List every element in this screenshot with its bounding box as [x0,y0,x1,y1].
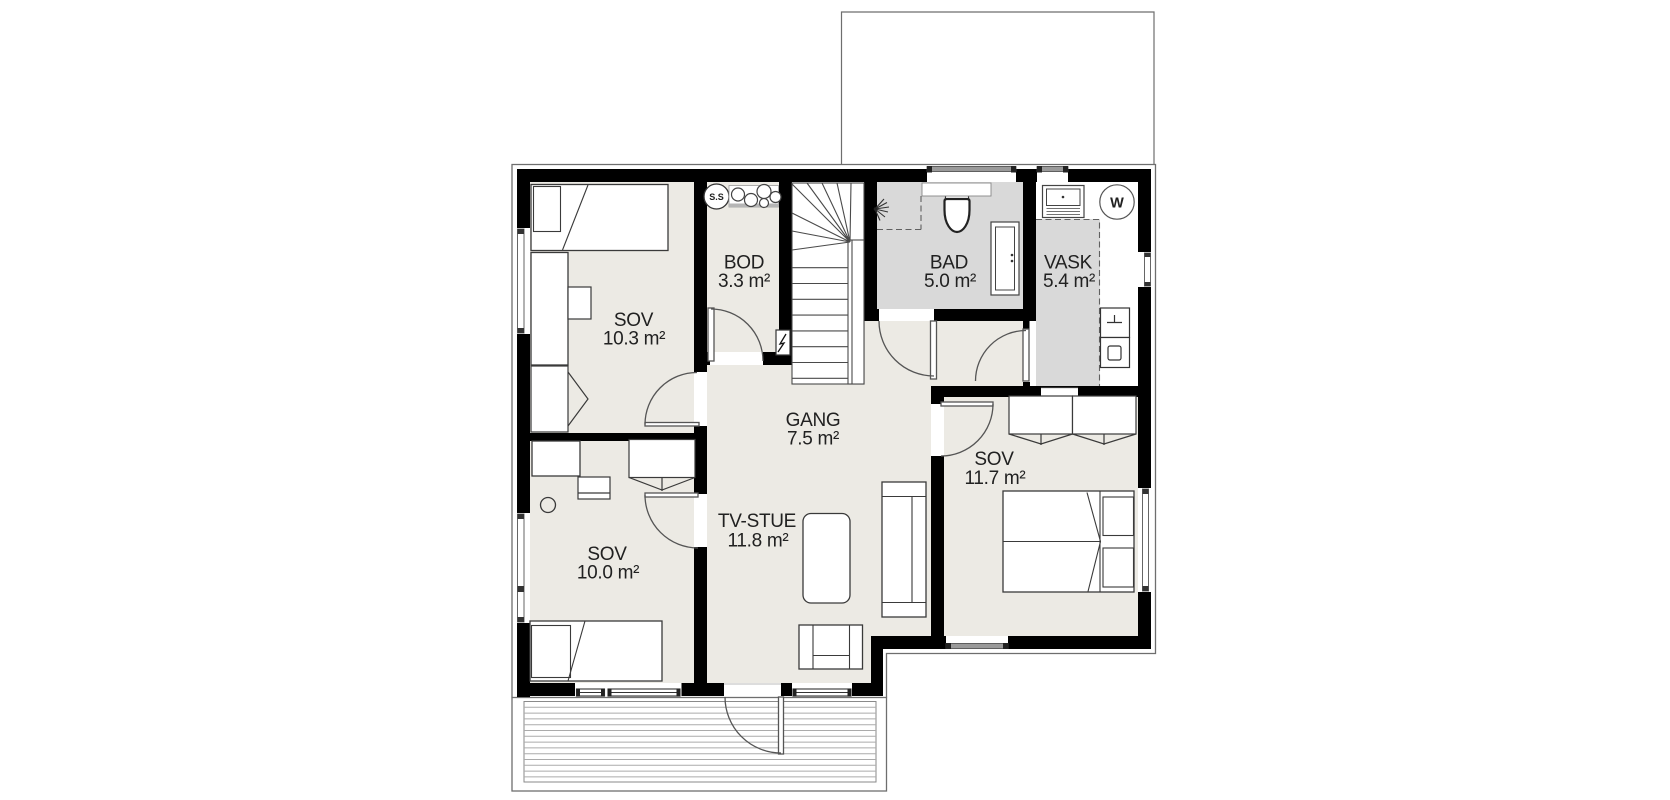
svg-text:11.8 m²: 11.8 m² [728,531,789,552]
svg-text:7.5 m²: 7.5 m² [787,429,839,450]
svg-text:S.S: S.S [709,192,724,202]
svg-text:SOV: SOV [974,449,1014,470]
svg-text:10.0 m²: 10.0 m² [577,563,639,584]
svg-text:11.7 m²: 11.7 m² [965,468,1026,489]
svg-text:W: W [1110,196,1124,212]
svg-text:TV-STUE: TV-STUE [718,511,796,532]
svg-text:3.3 m²: 3.3 m² [718,271,770,292]
svg-text:10.3 m²: 10.3 m² [603,329,665,350]
svg-text:5.0 m²: 5.0 m² [924,271,976,292]
svg-text:5.4 m²: 5.4 m² [1043,271,1095,292]
